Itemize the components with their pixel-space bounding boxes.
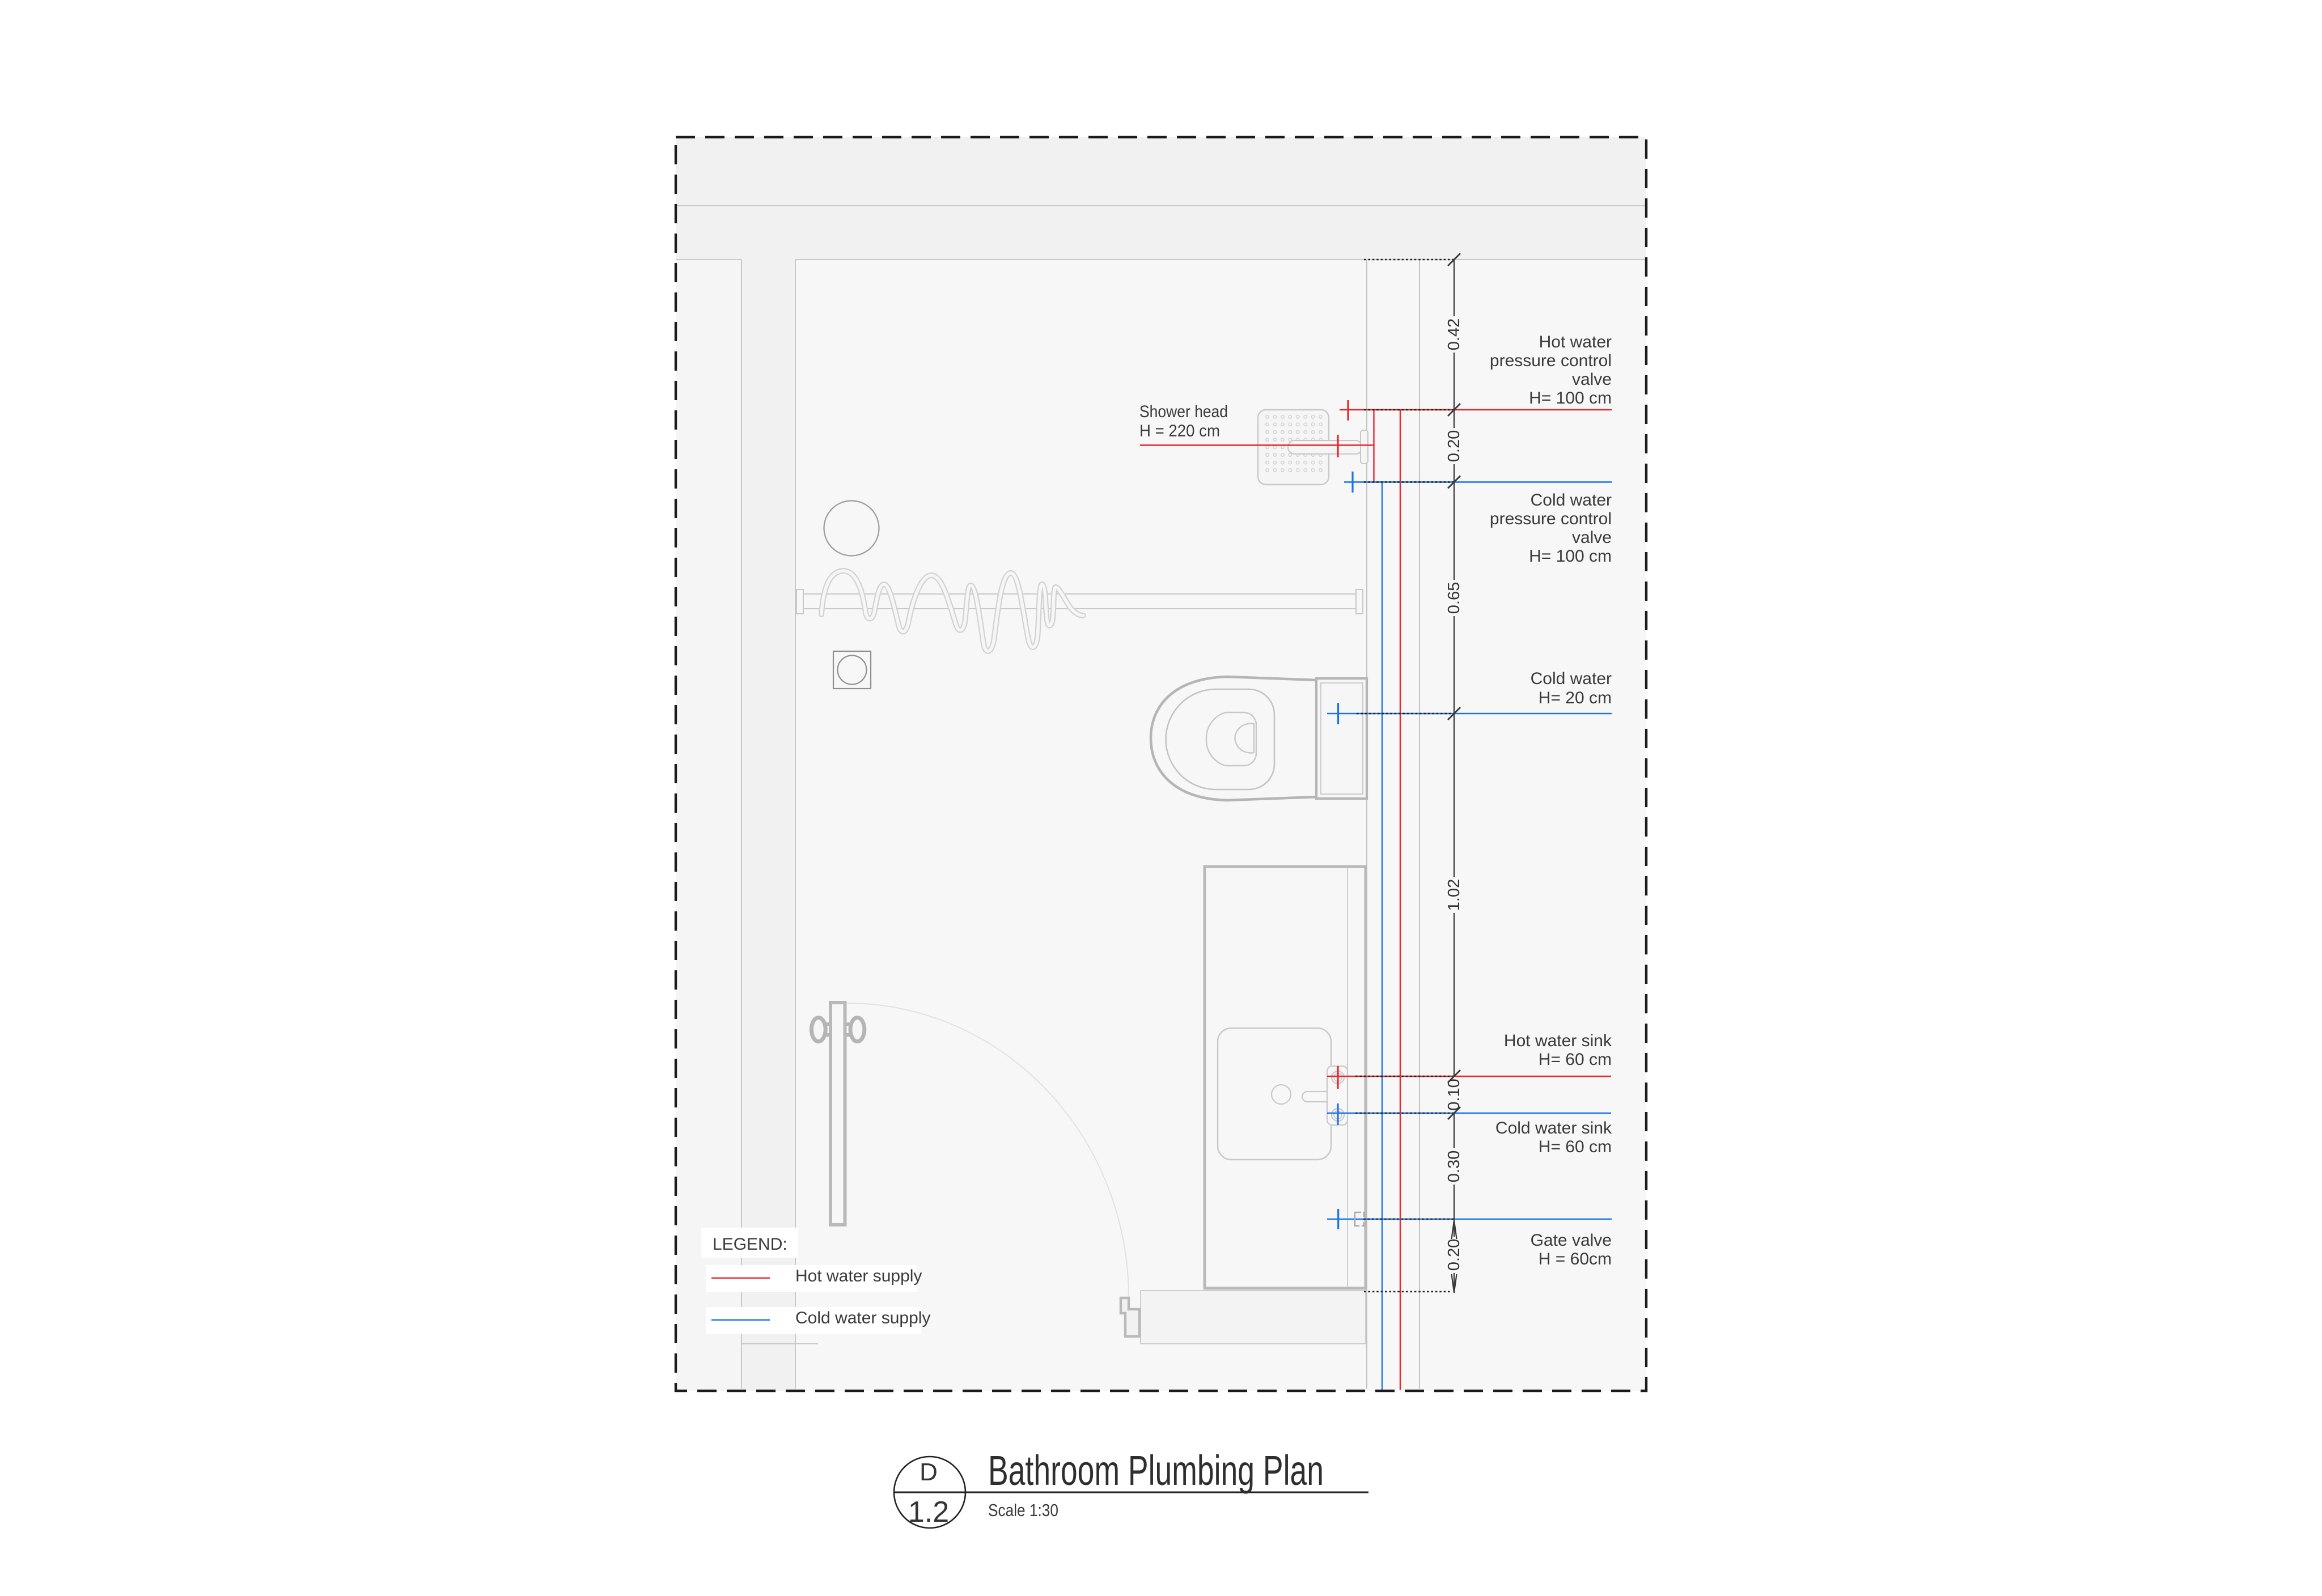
svg-text:0.30: 0.30 [1445, 1151, 1463, 1182]
svg-text:Cold water supply: Cold water supply [795, 1309, 930, 1327]
svg-text:Hot water: Hot water [1539, 333, 1612, 351]
svg-text:H= 100 cm: H= 100 cm [1529, 547, 1612, 566]
svg-text:H= 100 cm: H= 100 cm [1529, 389, 1612, 408]
svg-text:valve: valve [1572, 370, 1612, 389]
svg-text:Scale 1:30: Scale 1:30 [988, 1500, 1058, 1520]
svg-text:H= 60 cm: H= 60 cm [1539, 1137, 1612, 1156]
svg-text:pressure control: pressure control [1490, 351, 1612, 370]
svg-text:1.2: 1.2 [908, 1496, 949, 1529]
svg-text:D: D [920, 1458, 938, 1486]
svg-text:Cold water sink: Cold water sink [1495, 1119, 1612, 1137]
svg-text:Hot water sink: Hot water sink [1504, 1032, 1612, 1050]
svg-text:Cold water: Cold water [1531, 491, 1612, 510]
svg-text:LEGEND:: LEGEND: [713, 1235, 787, 1254]
svg-text:H = 60cm: H = 60cm [1539, 1250, 1612, 1268]
svg-text:Bathroom Plumbing Plan: Bathroom Plumbing Plan [988, 1447, 1324, 1494]
svg-text:H= 20 cm: H= 20 cm [1539, 689, 1612, 707]
svg-text:0.10: 0.10 [1445, 1079, 1463, 1110]
svg-text:0.20: 0.20 [1445, 430, 1463, 462]
svg-text:0.65: 0.65 [1445, 582, 1463, 614]
svg-text:0.42: 0.42 [1445, 319, 1463, 350]
svg-text:pressure control: pressure control [1490, 510, 1612, 528]
svg-text:H= 60 cm: H= 60 cm [1539, 1050, 1612, 1069]
svg-text:Gate valve: Gate valve [1531, 1231, 1612, 1250]
svg-text:0.20: 0.20 [1445, 1239, 1463, 1271]
svg-text:Hot water supply: Hot water supply [795, 1267, 922, 1285]
svg-text:1.02: 1.02 [1445, 879, 1463, 911]
svg-text:Cold water: Cold water [1531, 669, 1612, 688]
svg-text:H = 220 cm: H = 220 cm [1139, 422, 1220, 440]
svg-text:valve: valve [1572, 528, 1612, 547]
svg-text:Shower head: Shower head [1139, 402, 1228, 421]
